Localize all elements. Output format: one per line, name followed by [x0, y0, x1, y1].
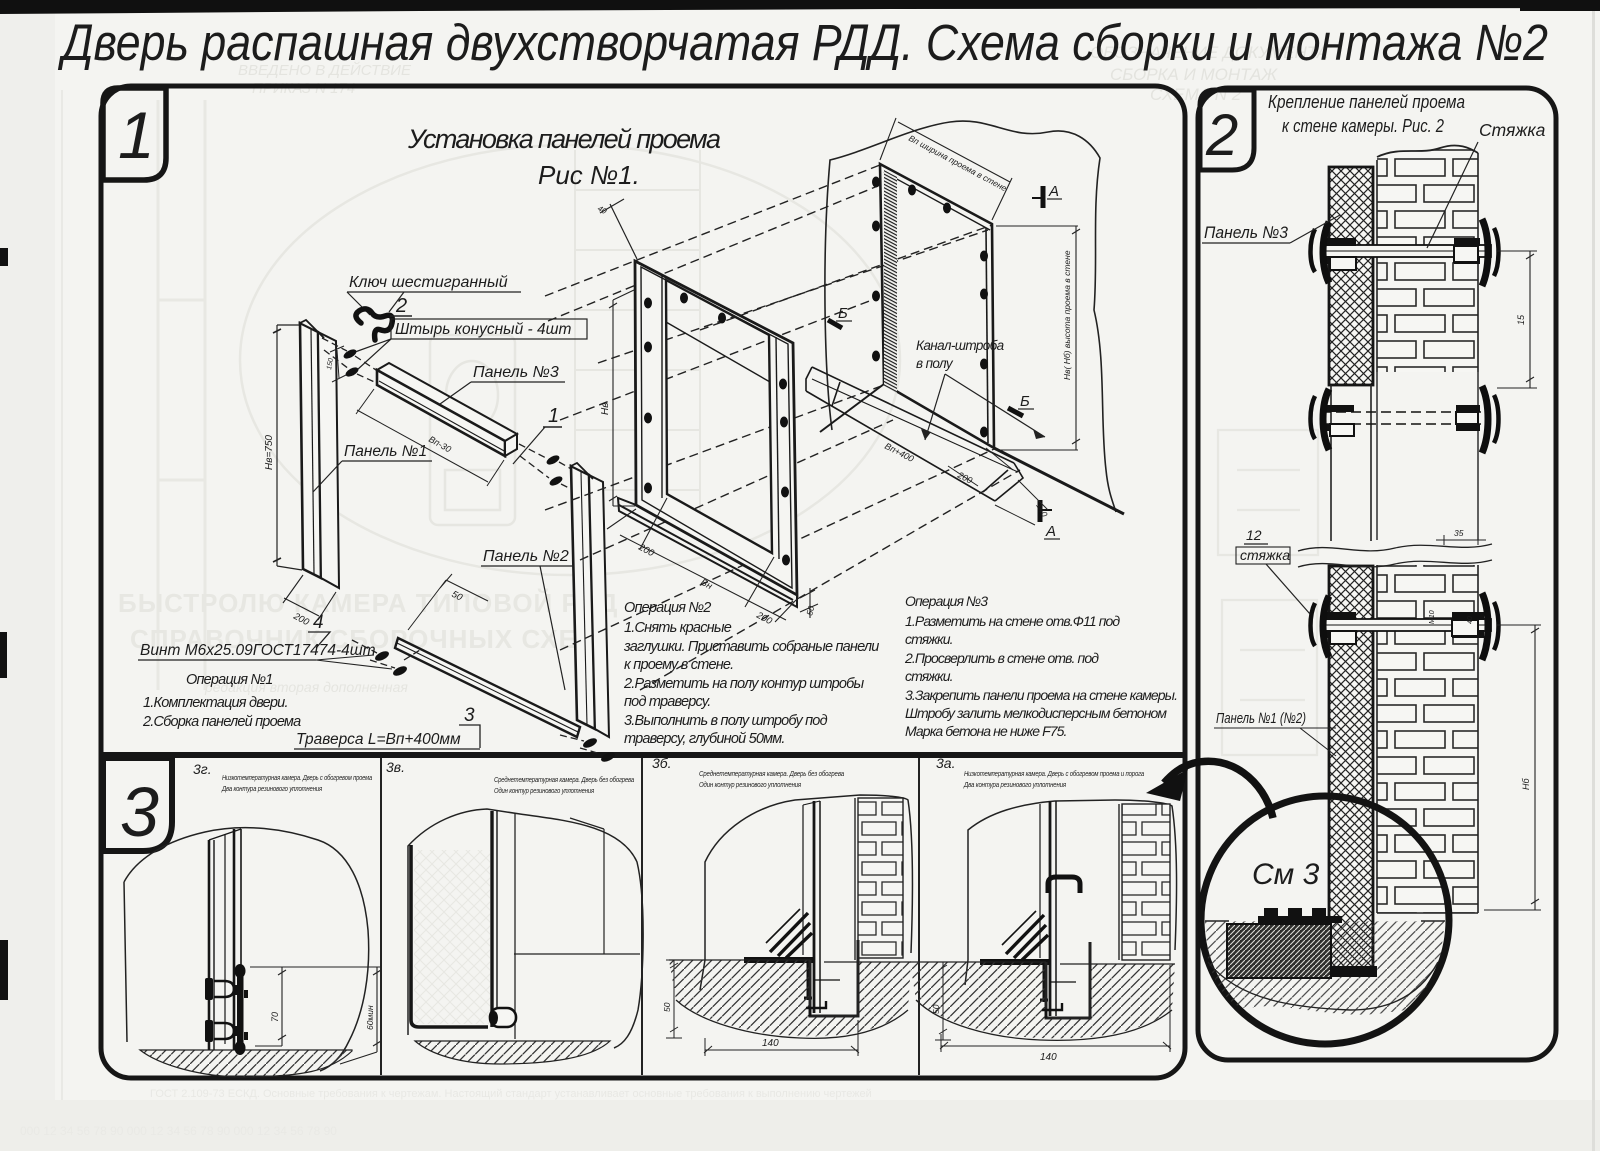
- svg-text:000 12 34 56 78 90 000 12 34 5: 000 12 34 56 78 90 000 12 34 56 78 90 00…: [20, 1124, 337, 1138]
- svg-text:Марка бетона не ниже F75.: Марка бетона не ниже F75.: [905, 723, 1067, 739]
- svg-text:35: 35: [1454, 528, 1464, 538]
- svg-text:Рис №1.: Рис №1.: [538, 160, 640, 190]
- svg-text:Два контура резинового уплотне: Два контура резинового уплотнения: [221, 784, 322, 793]
- svg-text:Б: Б: [838, 305, 848, 322]
- svg-text:Операция №1: Операция №1: [186, 672, 273, 688]
- svg-text:заглушки. Приставить собраные: заглушки. Приставить собраные панели: [623, 639, 879, 655]
- svg-text:стяжка: стяжка: [1240, 547, 1290, 563]
- svg-text:Канал-штроба: Канал-штроба: [916, 338, 1005, 353]
- svg-text:50: 50: [931, 1004, 941, 1014]
- svg-text:140: 140: [1040, 1052, 1057, 1063]
- svg-text:3.Закрепить панели проема на с: 3.Закрепить панели проема на стене камер…: [905, 687, 1177, 703]
- svg-text:40: 40: [1467, 616, 1474, 624]
- svg-text:1.Снять красные: 1.Снять красные: [624, 620, 732, 636]
- svg-text:Низкотемпературная камера. Две: Низкотемпературная камера. Дверь с обогр…: [222, 773, 372, 782]
- svg-text:Операция №3: Операция №3: [905, 593, 988, 609]
- svg-text:Среднетемпературная камера. Дв: Среднетемпературная камера. Дверь без об…: [699, 769, 844, 778]
- svg-text:3.Выполнить в полу штробу под: 3.Выполнить в полу штробу под: [624, 713, 828, 729]
- svg-text:стяжки.: стяжки.: [905, 631, 953, 647]
- svg-text:Панель №1: Панель №1: [344, 443, 427, 460]
- svg-text:Б: Б: [1020, 393, 1030, 410]
- svg-text:Стяжка: Стяжка: [1479, 120, 1546, 140]
- svg-text:1: 1: [548, 405, 559, 427]
- svg-text:140: 140: [762, 1038, 779, 1049]
- svg-text:3в.: 3в.: [386, 759, 405, 775]
- svg-text:4: 4: [313, 612, 324, 633]
- svg-text:Нб: Нб: [1521, 778, 1531, 790]
- svg-text:Панель №1 (№2): Панель №1 (№2): [1216, 710, 1306, 727]
- svg-text:Дверь распашная двухстворчатая: Дверь распашная двухстворчатая РДД. Схем…: [58, 14, 1548, 71]
- svg-text:А: А: [1048, 183, 1059, 200]
- svg-text:Нв=750: Нв=750: [264, 435, 275, 470]
- svg-text:12: 12: [1246, 527, 1262, 543]
- svg-text:траверсу, глубиной 50мм.: траверсу, глубиной 50мм.: [624, 731, 785, 747]
- svg-text:ГОСТ 2.109-73 ЕСКД. Основные т: ГОСТ 2.109-73 ЕСКД. Основные требования …: [150, 1088, 872, 1100]
- svg-text:Траверса L=Вп+400мм: Траверса L=Вп+400мм: [296, 731, 461, 748]
- svg-text:M10: M10: [1429, 610, 1436, 624]
- svg-text:к стене камеры. Рис. 2: к стене камеры. Рис. 2: [1282, 115, 1445, 136]
- svg-text:БЫСТРОЛЮ КАМЕРА ТИПОВОЙ РЯД: БЫСТРОЛЮ КАМЕРА ТИПОВОЙ РЯД: [118, 588, 618, 618]
- svg-text:Нв( Нб) высота проема в стене: Нв( Нб) высота проема в стене: [1062, 250, 1072, 380]
- svg-text:Установка панелей проема: Установка панелей проема: [407, 124, 721, 154]
- svg-text:Низкотемпературная камера. Две: Низкотемпературная камера. Дверь с обогр…: [964, 769, 1144, 778]
- svg-text:2: 2: [395, 295, 407, 317]
- svg-text:1: 1: [118, 98, 155, 172]
- svg-text:Ключ шестигранный: Ключ шестигранный: [349, 274, 508, 291]
- svg-text:2.Разметить на полу контур штр: 2.Разметить на полу контур штробы: [623, 676, 865, 692]
- svg-text:Один контур резинового уплотне: Один контур резинового уплотнения: [699, 780, 801, 789]
- svg-text:70: 70: [270, 1012, 280, 1022]
- svg-text:2: 2: [1205, 103, 1238, 168]
- svg-text:Два контура резинового уплотне: Два контура резинового уплотнения: [963, 780, 1066, 789]
- svg-text:3: 3: [120, 773, 159, 851]
- svg-text:А: А: [1045, 523, 1056, 540]
- svg-text:Один контур резинового уплотне: Один контур резинового уплотнения: [494, 786, 594, 795]
- svg-text:Винт М6х25.09ГОСТ17474-4шт: Винт М6х25.09ГОСТ17474-4шт: [140, 642, 376, 659]
- svg-text:2.Просверлить в стене отв.: 2.Просверлить в стене отв. под: [904, 650, 1099, 666]
- svg-text:2.Сборка панелей проема: 2.Сборка панелей проема: [142, 714, 301, 730]
- svg-text:под траверсу.: под траверсу.: [624, 694, 711, 710]
- svg-text:стяжки.: стяжки.: [905, 668, 953, 684]
- svg-text:Крепление панелей проема: Крепление панелей проема: [1268, 91, 1465, 112]
- svg-text:Нв: Нв: [600, 403, 611, 415]
- svg-text:60мин: 60мин: [365, 1005, 375, 1030]
- svg-text:См 3: См 3: [1252, 858, 1320, 891]
- svg-text:Панель №2: Панель №2: [483, 548, 569, 565]
- svg-text:Штырь конусный - 4шт: Штырь конусный - 4шт: [395, 321, 571, 338]
- svg-text:3б.: 3б.: [652, 755, 672, 771]
- svg-text:3а.: 3а.: [936, 755, 955, 771]
- svg-text:3г.: 3г.: [193, 761, 212, 777]
- svg-text:Панель №3: Панель №3: [1204, 223, 1288, 242]
- svg-text:1.Разметить на стене отв.Ф11 п: 1.Разметить на стене отв.Ф11 под: [905, 613, 1120, 629]
- svg-text:50: 50: [662, 1002, 672, 1012]
- svg-text:к проему в стене.: к проему в стене.: [624, 657, 733, 673]
- svg-text:1.Комплектация двери.: 1.Комплектация двери.: [143, 695, 288, 711]
- svg-text:Штробу залить мелкодисперсным: Штробу залить мелкодисперсным бетоном: [905, 705, 1167, 721]
- svg-text:Среднетемпературная камера. Дв: Среднетемпературная камера. Дверь без об…: [494, 775, 634, 784]
- svg-text:Панель №3: Панель №3: [473, 364, 559, 381]
- svg-text:Операция №2: Операция №2: [624, 600, 711, 616]
- svg-text:15: 15: [1516, 314, 1526, 325]
- svg-text:в полу: в полу: [916, 356, 954, 371]
- svg-text:3: 3: [464, 705, 475, 726]
